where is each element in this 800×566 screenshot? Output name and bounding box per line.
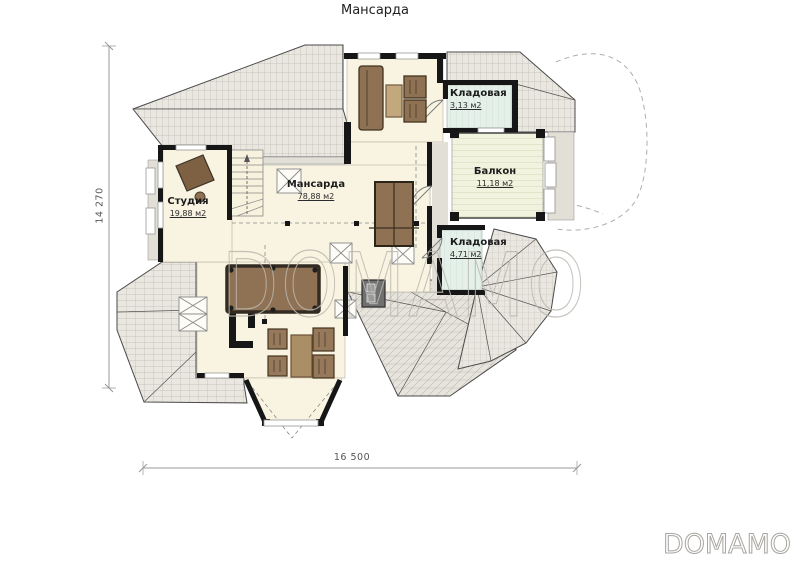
- turret-windows: [544, 137, 556, 213]
- room-name: Студия: [156, 196, 220, 209]
- dining-chair: [313, 355, 334, 378]
- room-label-balcony: Балкон 11,18 м2: [460, 166, 530, 189]
- window: [176, 145, 206, 150]
- room-area: 78,88 м2: [276, 192, 356, 202]
- room-name: Мансарда: [276, 179, 356, 192]
- room-name: Балкон: [460, 166, 530, 179]
- dining-chair: [268, 356, 287, 376]
- studio-side-window: [146, 168, 155, 194]
- dimension-label-horizontal: 16 500: [292, 452, 412, 463]
- brand-logo: DOMAMO: [663, 529, 791, 560]
- window: [358, 53, 380, 59]
- room-label-mansarda: Мансарда 78,88 м2: [276, 179, 356, 202]
- dimension-label-vertical: 14 270: [95, 184, 106, 228]
- window: [158, 162, 163, 188]
- window: [396, 53, 418, 59]
- armchair: [404, 100, 426, 122]
- room-area: 11,18 м2: [460, 179, 530, 189]
- room-area: 4,71 м2: [450, 250, 520, 260]
- floor-plan-drawing: DOMAMO DOMAMO: [0, 0, 800, 566]
- room-label-storage1: Кладовая 3,13 м2: [450, 88, 520, 111]
- armchair: [404, 76, 426, 98]
- room-area: 3,13 м2: [450, 101, 520, 111]
- watermark: DOMAMO: [222, 234, 588, 337]
- studio-side-window: [146, 208, 155, 234]
- room-name: Кладовая: [450, 88, 520, 101]
- coffee-table: [386, 85, 402, 117]
- room-name: Кладовая: [450, 237, 520, 250]
- sofa: [359, 66, 383, 130]
- staircase: [231, 150, 263, 216]
- dining-table: [291, 335, 312, 377]
- room-label-studio: Студия 19,88 м2: [156, 196, 220, 219]
- skylight: [179, 297, 207, 314]
- skylight: [179, 314, 207, 331]
- room-label-storage2: Кладовая 4,71 м2: [450, 237, 520, 260]
- window: [205, 373, 229, 378]
- window: [264, 420, 318, 426]
- page-title: Мансарда: [300, 3, 450, 18]
- floor-plan-page: DOMAMO DOMAMO Мансарда Студия 19,88 м2 М…: [0, 0, 800, 566]
- room-area: 19,88 м2: [156, 209, 220, 219]
